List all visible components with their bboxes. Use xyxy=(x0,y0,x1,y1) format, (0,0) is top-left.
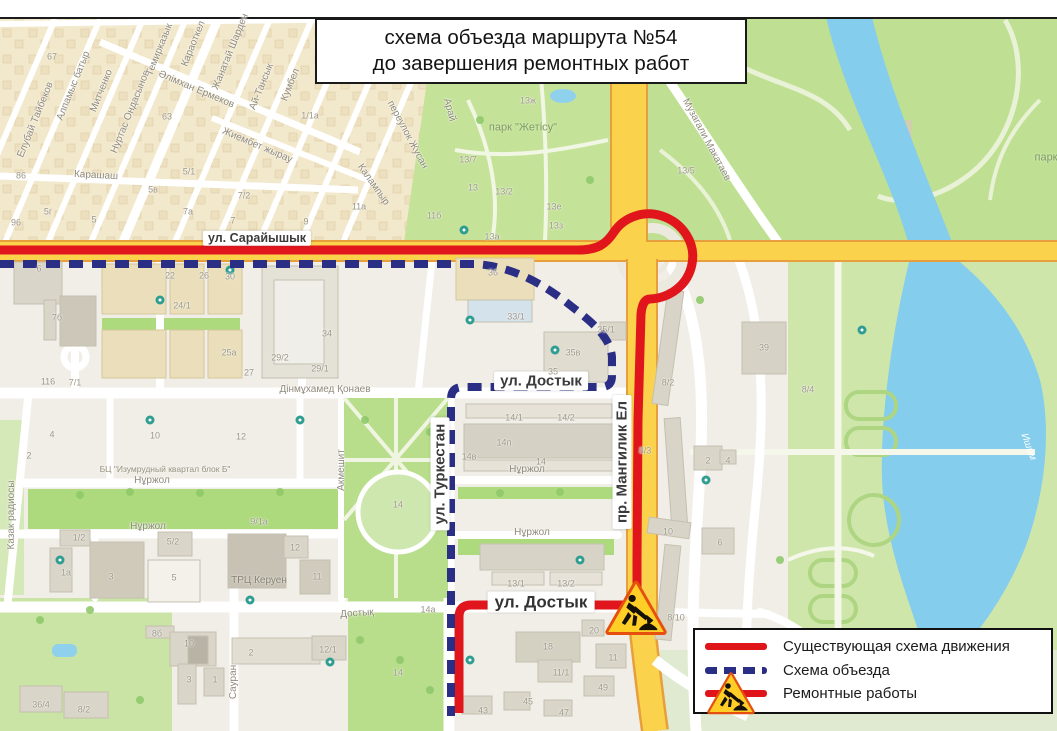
building-number: 6 xyxy=(36,265,41,274)
legend-item: Ремонтные работы xyxy=(705,683,1043,705)
building-number: 47 xyxy=(559,709,569,718)
building-number: 2 xyxy=(26,452,31,461)
building-number: 12 xyxy=(290,544,300,553)
building-number: 14 xyxy=(393,501,403,510)
building-number: 11 xyxy=(608,654,617,663)
building-number: 36 xyxy=(488,269,498,278)
building-number: 13/2 xyxy=(495,188,513,197)
building-number: 13е xyxy=(546,203,561,212)
building-number: 20 xyxy=(589,627,599,636)
building-number: 7/1 xyxy=(69,379,82,388)
building-number: 86 xyxy=(16,172,26,181)
building-number: 13/2 xyxy=(557,580,575,589)
building-number: 5в xyxy=(148,186,158,195)
detour-scheme-map: ул. Сарайышыкул. Достыкул. Достыкул. Тур… xyxy=(0,0,1057,731)
building-number: 8б xyxy=(152,630,162,639)
building-number: 13/1 xyxy=(507,580,525,589)
building-number: 14в xyxy=(462,453,477,462)
building-number: 1/2 xyxy=(73,534,86,543)
building-number: 49 xyxy=(598,684,608,693)
building-number: 3 xyxy=(108,573,113,582)
legend-swatch xyxy=(705,690,767,697)
street-label: парк "Жетісу" xyxy=(489,123,557,134)
building-number: 14/1 xyxy=(505,414,523,423)
building-number: 13з xyxy=(549,222,563,231)
building-number: 25а xyxy=(221,349,236,358)
building-number: 14 xyxy=(393,669,403,678)
building-number: 39 xyxy=(759,344,769,353)
building-number: 5г xyxy=(44,208,52,217)
street-label: ул. Достык xyxy=(488,592,595,613)
street-label: Нұржол xyxy=(134,476,170,486)
building-number: 7б xyxy=(52,314,62,323)
building-number: 8/10 xyxy=(667,614,685,623)
building-number: 22 xyxy=(165,272,175,281)
building-number: 24/1 xyxy=(173,302,191,311)
street-label: ул. Сарайышык xyxy=(203,231,311,246)
building-number: 13ж xyxy=(520,97,536,106)
building-number: 45 xyxy=(523,698,533,707)
building-number: 8/4 xyxy=(802,386,815,395)
street-label: ТРЦ Керуен xyxy=(231,576,287,586)
building-number: 11 xyxy=(312,573,321,582)
street-label: Дінмұхамед Қонаев xyxy=(279,385,370,395)
title-box: схема объезда маршрута №54 до завершения… xyxy=(315,18,747,84)
building-number: 4 xyxy=(49,431,54,440)
building-number: 5/1 xyxy=(183,168,196,177)
building-number: 13/5 xyxy=(677,167,695,176)
title-line-2: до завершения ремонтных работ xyxy=(317,51,745,77)
building-number: 5/2 xyxy=(167,538,180,547)
building-number: 2 xyxy=(705,457,710,466)
building-number: 8/3 xyxy=(639,447,652,456)
building-number: 10 xyxy=(663,528,673,537)
building-number: 35/1 xyxy=(597,326,615,335)
street-label: Акмешит xyxy=(337,449,347,491)
map-base xyxy=(0,0,1057,731)
building-number: 1а xyxy=(61,569,71,578)
roadworks-icon xyxy=(605,579,667,636)
building-number: 30 xyxy=(225,273,235,282)
building-number: 34 xyxy=(322,330,332,339)
building-number: 29/1 xyxy=(311,365,329,374)
street-label: Нұржол xyxy=(509,465,545,475)
building-number: 9 xyxy=(303,218,308,227)
building-number: 10 xyxy=(184,640,194,649)
legend-label: Ремонтные работы xyxy=(783,685,917,702)
street-label: Казак радиосы xyxy=(7,481,17,550)
building-number: 11/1 xyxy=(553,669,570,678)
street-label: ул. Туркестан xyxy=(431,418,450,531)
building-number: 27 xyxy=(244,369,254,378)
building-number: 5 xyxy=(91,216,96,225)
street-label: БЦ "Изумрудный квартал блок Б" xyxy=(100,465,231,474)
legend-label: Схема объезда xyxy=(783,662,890,679)
building-number: 3 xyxy=(186,676,191,685)
building-number: 13/7 xyxy=(459,156,477,165)
building-number: 6 xyxy=(717,539,722,548)
building-number: 11б xyxy=(427,212,442,221)
building-number: 14а xyxy=(420,606,435,615)
building-number: 18 xyxy=(543,643,553,652)
building-number: 1 xyxy=(212,676,217,685)
building-number: 63 xyxy=(162,113,172,122)
building-number: 26 xyxy=(199,272,209,281)
legend-item: Существующая схема движения xyxy=(705,636,1043,658)
building-number: 14п xyxy=(497,439,512,448)
building-number: 7а xyxy=(183,208,193,217)
building-number: 13 xyxy=(468,184,478,193)
building-number: 7 xyxy=(230,217,235,226)
building-number: 36/4 xyxy=(32,701,50,710)
building-number: 35 xyxy=(548,368,558,377)
title-line-1: схема объезда маршрута №54 xyxy=(317,25,745,51)
legend-swatch xyxy=(705,643,767,650)
building-number: 11а xyxy=(352,203,366,212)
building-number: 7/2 xyxy=(238,192,251,201)
street-label: пр. Мангилик Ел xyxy=(613,395,632,529)
building-number: 96 xyxy=(11,219,21,228)
building-number: 4 xyxy=(725,457,730,466)
legend-label: Существующая схема движения xyxy=(783,638,1010,655)
building-number: 5 xyxy=(171,574,176,583)
building-number: 8/2 xyxy=(78,706,91,715)
street-label: Сауран xyxy=(229,665,239,699)
building-number: 14 xyxy=(536,458,546,467)
street-label: парк xyxy=(1034,153,1057,164)
legend: Существующая схема движения Схема объезд… xyxy=(693,628,1053,714)
building-number: 12/1 xyxy=(319,646,337,655)
street-label: ул. Достык xyxy=(494,372,588,391)
building-number: 8/2 xyxy=(662,379,675,388)
building-number: 13а xyxy=(484,233,499,242)
building-number: 14/2 xyxy=(557,414,575,423)
top-margin xyxy=(0,0,1057,17)
building-number: 10 xyxy=(150,432,160,441)
building-number: 29/2 xyxy=(271,354,289,363)
roadworks-icon xyxy=(707,671,755,715)
street-label: Нұржол xyxy=(514,528,550,538)
building-number: 9/1а xyxy=(250,518,268,527)
building-number: 67 xyxy=(47,53,57,62)
building-number: 35в xyxy=(566,349,581,358)
building-number: 33/1 xyxy=(507,313,525,322)
building-number: 43 xyxy=(478,707,488,716)
street-label: Нұржол xyxy=(130,522,166,532)
building-number: 1/1а xyxy=(301,112,319,121)
legend-item: Схема объезда xyxy=(705,659,1043,681)
building-number: 116 xyxy=(41,378,55,387)
building-number: 2 xyxy=(248,649,253,658)
building-number: 12 xyxy=(236,433,246,442)
